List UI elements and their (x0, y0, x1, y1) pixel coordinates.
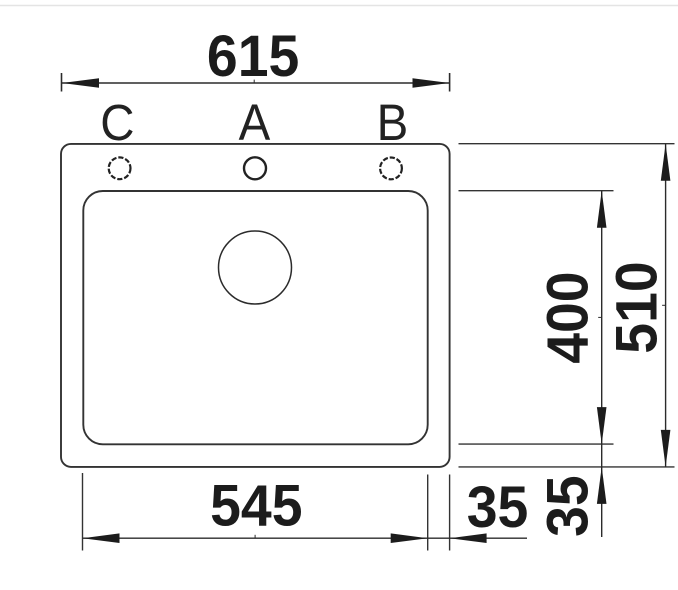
svg-text:A: A (239, 94, 271, 151)
svg-text:35: 35 (467, 476, 529, 540)
svg-text:35: 35 (536, 475, 600, 537)
svg-text:510: 510 (605, 261, 669, 353)
svg-text:C: C (100, 94, 134, 151)
svg-text:615: 615 (207, 25, 299, 89)
svg-text:400: 400 (536, 271, 600, 363)
svg-text:B: B (377, 94, 409, 151)
svg-text:545: 545 (210, 475, 302, 539)
